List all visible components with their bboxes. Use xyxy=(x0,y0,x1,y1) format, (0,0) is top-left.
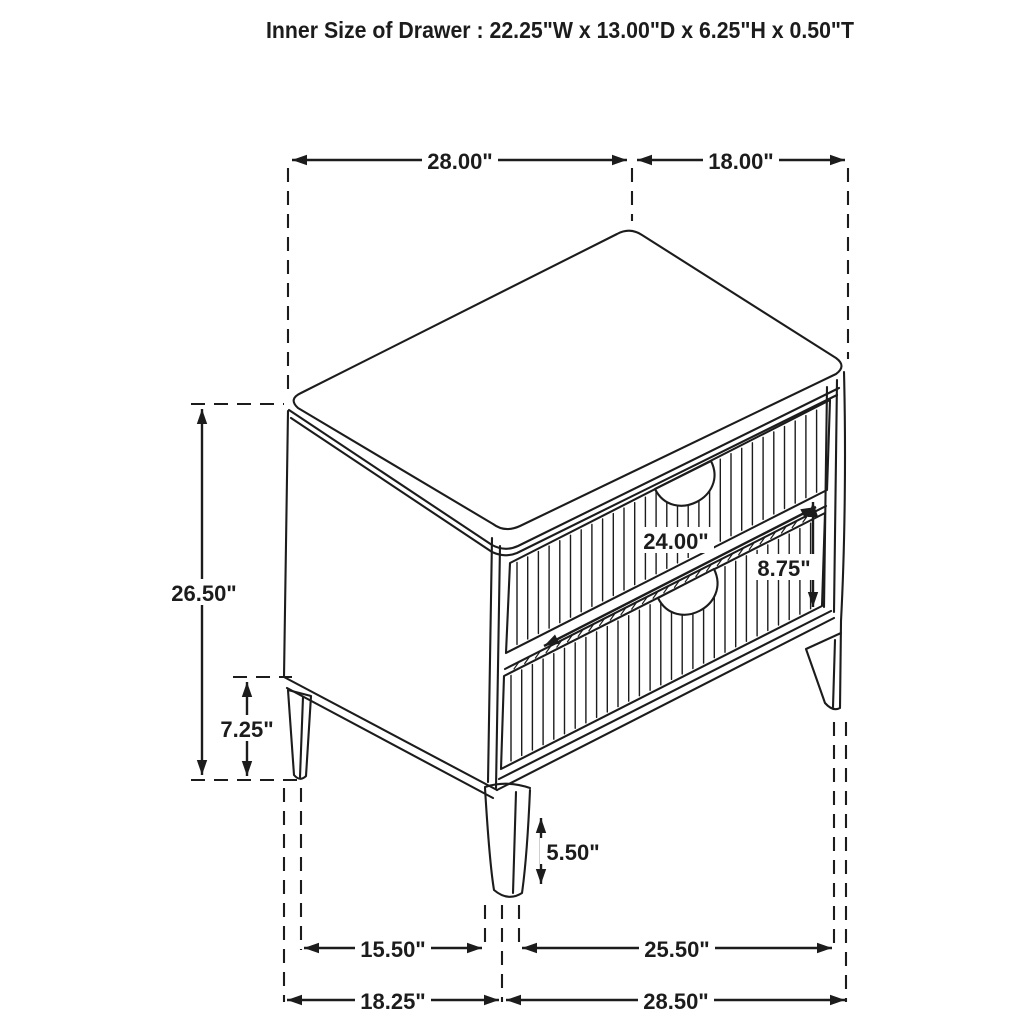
dim-base-inner-side-label: 15.50" xyxy=(360,937,425,962)
dim-overall-height: 26.50" xyxy=(166,579,242,606)
dim-side-leg-clearance-label: 7.25" xyxy=(220,717,273,742)
diagram-title: Inner Size of Drawer : 22.25"W x 13.00"D… xyxy=(266,17,854,43)
dim-base-inner-side: 15.50" xyxy=(355,935,431,962)
dim-base-outer-side: 18.25" xyxy=(355,987,431,1014)
dim-top-depth-label: 18.00" xyxy=(708,149,773,174)
dim-base-inner-front: 25.50" xyxy=(639,935,715,962)
dim-base-outer-side-label: 18.25" xyxy=(360,989,425,1014)
right-leg xyxy=(806,621,841,709)
dim-drawer-width: 24.00" xyxy=(638,527,714,554)
dim-top-width-label: 28.00" xyxy=(427,149,492,174)
diagram-page: 28.00" 18.00" 26.50" 7.25" 24.00" 8.75" … xyxy=(0,0,1024,1024)
front-leg xyxy=(485,784,530,897)
dim-top-width: 28.00" xyxy=(422,147,498,174)
dim-drawer-width-label: 24.00" xyxy=(643,529,708,554)
nightstand-dimension-diagram: 28.00" 18.00" 26.50" 7.25" 24.00" 8.75" … xyxy=(0,0,1024,1024)
right-corner-post xyxy=(824,372,845,621)
dim-front-leg-height-label: 5.50" xyxy=(546,840,599,865)
dim-side-leg-clearance: 7.25" xyxy=(214,715,280,742)
left-leg xyxy=(288,690,311,779)
dim-overall-height-label: 26.50" xyxy=(171,581,236,606)
dim-base-outer-front: 28.50" xyxy=(638,987,714,1014)
dim-drawer-front-height-label: 8.75" xyxy=(757,556,810,581)
front-corner-post xyxy=(488,538,500,788)
dim-top-depth: 18.00" xyxy=(703,147,779,174)
dim-drawer-front-height: 8.75" xyxy=(751,554,817,581)
dim-base-inner-front-label: 25.50" xyxy=(644,937,709,962)
dim-base-outer-front-label: 28.50" xyxy=(643,989,708,1014)
dim-front-leg-height: 5.50" xyxy=(540,838,606,865)
